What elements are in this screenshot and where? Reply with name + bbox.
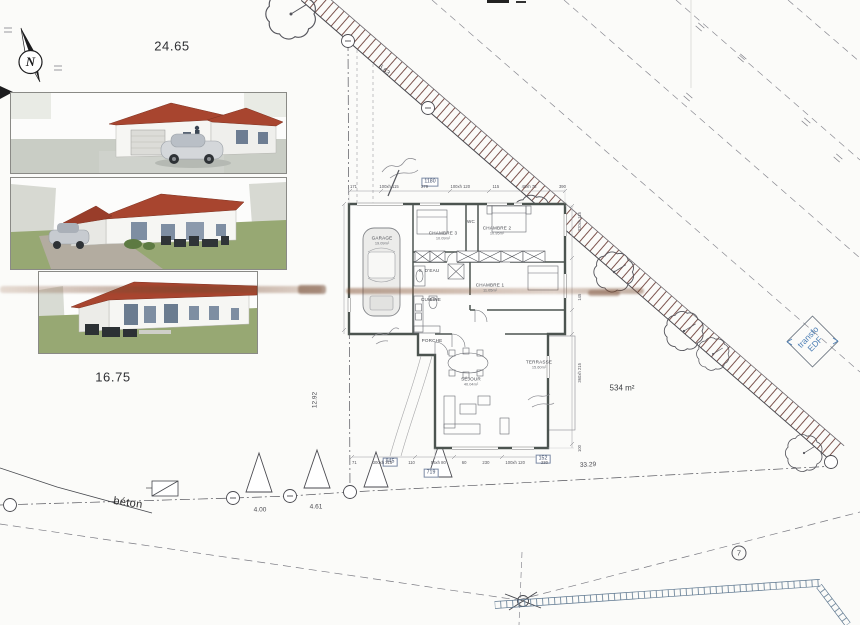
- room-label-chambre3: CHAMBRE 3 10.09m²: [429, 231, 458, 242]
- room-label-porche: PORCHE: [422, 338, 443, 344]
- room-label-sejour: SÉJOUR 40.04m²: [461, 377, 481, 388]
- room-label-chambre2: CHAMBRE 2 10.95m²: [483, 226, 512, 237]
- conifer-icon: [246, 453, 272, 492]
- boundary-length-dimension: 33.29: [580, 461, 597, 469]
- tree-icon: [785, 435, 822, 472]
- render-front-view: [10, 92, 287, 174]
- plot-top-dimension: 24.65: [154, 39, 190, 54]
- conifer-icon: [304, 450, 330, 488]
- room-label-wc: WC: [467, 219, 475, 225]
- right-dimension-chain: 100360xh 215 145320xh 115: [577, 212, 582, 452]
- plot-left-dimension: 16.75: [95, 370, 131, 385]
- room-label-chambre1: CHAMBRE 1 11.05m²: [476, 283, 505, 294]
- floor-plan: [342, 189, 575, 459]
- conifer-icons: [246, 441, 452, 492]
- bottom-dimension-chain: 71300xh 215 11055xh 80 60230 100xh 12023…: [352, 460, 548, 465]
- north-label: N: [26, 54, 35, 70]
- room-label-cuisine: CUISINE: [421, 297, 441, 303]
- room-label-terrasse: TERRASSE 15.60m²: [526, 360, 552, 371]
- front-walk: [390, 356, 432, 456]
- fence-strip: [495, 579, 851, 625]
- parcel-area: 534 m²: [610, 384, 635, 393]
- room-label-sde: S. D'EAU: [419, 268, 440, 274]
- beton-leader: [0, 468, 178, 513]
- survey-point-number: 7: [732, 546, 747, 561]
- site-plan-sheet: N 24.65 16.75 534 m² 6.63 4.00 4.61 33.2…: [0, 0, 860, 625]
- left-vertical-dimension: 12.92: [312, 392, 319, 408]
- scan-mark: [516, 1, 526, 3]
- render-rear-view: [38, 271, 258, 354]
- top-dimension-chain: 171100xh 115 279100xh 120 11540xh 75 390: [350, 184, 566, 189]
- room-label-garage: GARAGE 19.09m²: [372, 236, 393, 247]
- scan-mark: [487, 0, 509, 3]
- wardrobes: [415, 251, 545, 262]
- distance-dimension: 4.61: [310, 504, 323, 511]
- distance-dimension: 4.00: [254, 507, 267, 514]
- boxed-dimension: 719: [424, 469, 439, 478]
- render-side-view: [10, 177, 287, 270]
